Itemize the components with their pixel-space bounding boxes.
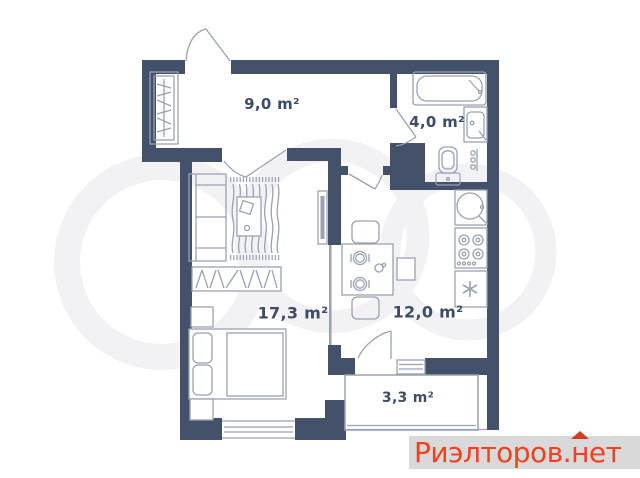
double-bed — [189, 329, 286, 399]
room-label-hallway: 9,0 m² — [244, 95, 300, 113]
nightstand-bottom — [190, 399, 213, 420]
stove — [455, 228, 487, 268]
thin-partition — [329, 245, 332, 345]
floor-plan-image: 9,0 m² 4,0 m² 17,3 m² 12,0 m² 3,3 m² Риэ… — [0, 0, 640, 478]
nightstand-top — [191, 307, 213, 327]
site-watermark-text: Риэлторов.нет — [414, 439, 621, 467]
balcony-door — [358, 331, 391, 359]
chair-upper — [352, 221, 379, 243]
room-label-living-room: 17,3 m² — [258, 304, 329, 323]
entrance-door — [186, 29, 230, 61]
kitchen-sink — [455, 190, 487, 225]
tv-stand — [192, 267, 281, 291]
window-living — [222, 419, 295, 439]
tv-icon — [318, 191, 327, 244]
bathtub — [413, 72, 486, 105]
room-label-bathroom: 4,0 m² — [409, 113, 465, 131]
wardrobe — [150, 72, 178, 144]
house-roof-icon — [571, 431, 589, 439]
dining-table — [342, 244, 393, 295]
balcony-door-window — [397, 360, 425, 374]
coffee-table — [237, 197, 261, 236]
washbasin — [464, 107, 487, 142]
room-label-balcony: 3,3 m² — [382, 390, 434, 406]
floor-plan-drawing — [0, 0, 640, 478]
site-watermark-strip: Риэлторов.нет — [409, 436, 640, 469]
room-label-kitchen: 12,0 m² — [393, 303, 464, 322]
duct-shaft — [390, 143, 425, 186]
stool — [397, 258, 415, 280]
